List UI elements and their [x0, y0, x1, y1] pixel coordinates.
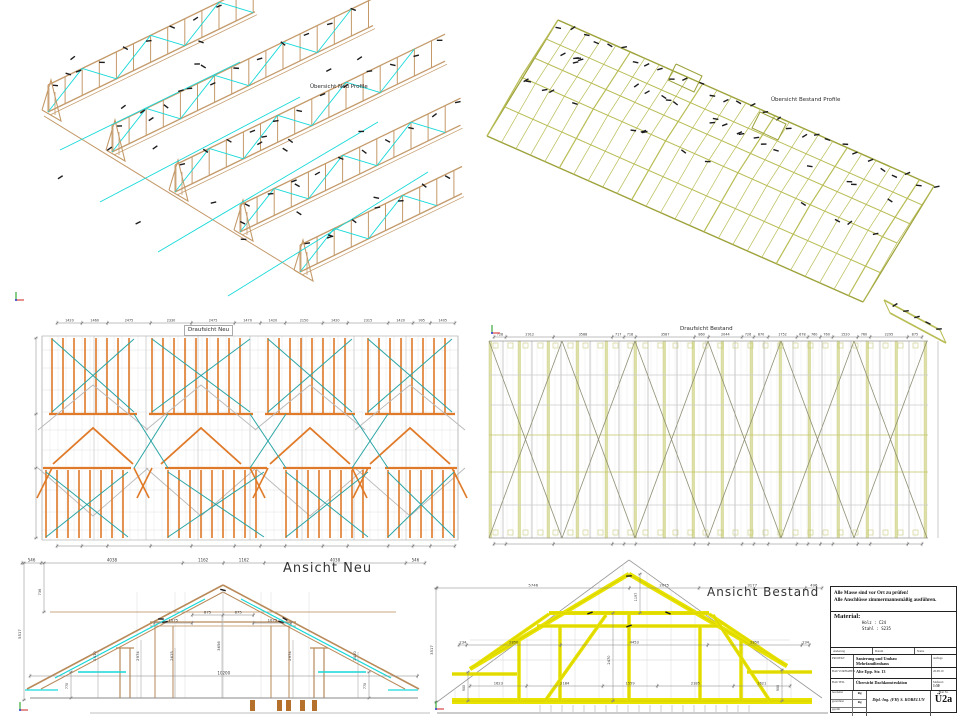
sign-label: bearbeitet	[831, 691, 853, 699]
sign-value: Rg	[853, 700, 866, 708]
material-section: Material: Holz : C24 Stahl : S235	[831, 611, 956, 647]
svg-text:234: 234	[459, 640, 467, 644]
svg-text:2410: 2410	[92, 651, 97, 661]
rev-col-name: Name	[915, 648, 956, 654]
svg-text:5517: 5517	[17, 629, 22, 639]
svg-text:770: 770	[65, 683, 69, 689]
blatt-value: Ü2a	[931, 694, 956, 706]
drawing-sheet: 1420146024752330247514701420215014202315…	[0, 0, 960, 720]
iso-neu-title: Übersicht Neu Profile	[310, 84, 368, 90]
svg-text:1470: 1470	[243, 318, 252, 322]
bauteil-label: BAUTEIL	[831, 679, 854, 690]
svg-text:546: 546	[28, 557, 36, 562]
svg-text:678: 678	[799, 332, 805, 336]
svg-text:1197: 1197	[634, 593, 638, 602]
svg-text:1752: 1752	[778, 332, 787, 336]
svg-text:860: 860	[698, 332, 704, 336]
iso-neu-drawing	[15, 0, 464, 301]
svg-text:5746: 5746	[528, 582, 538, 587]
svg-text:2075: 2075	[659, 582, 669, 587]
svg-text:875: 875	[912, 332, 918, 336]
auflage-value: 26.08.19	[932, 668, 956, 678]
svg-text:760: 760	[823, 332, 829, 336]
svg-text:1559: 1559	[625, 681, 635, 685]
svg-text:2912: 2912	[525, 332, 534, 336]
svg-text:726: 726	[745, 332, 751, 336]
sign-row-geprueft: geprüft	[831, 708, 866, 716]
svg-text:2974: 2974	[135, 651, 140, 661]
projekt-label: PROJEKT	[831, 655, 854, 667]
note-joinery: Alle Anschlüsse zimmermannsmäßig ausführ…	[834, 597, 953, 604]
bauvorhaben-value: Alte Epp. Str. 13	[854, 668, 932, 678]
svg-text:875: 875	[204, 609, 212, 614]
svg-text:1420: 1420	[396, 318, 405, 322]
svg-text:1162: 1162	[198, 557, 209, 562]
bauvorhaben-label: BAUVORHABEN	[831, 668, 854, 678]
svg-text:900: 900	[462, 685, 466, 691]
svg-text:1162: 1162	[239, 557, 250, 562]
svg-text:760: 760	[811, 332, 817, 336]
svg-text:1623: 1623	[494, 681, 503, 685]
svg-text:2295: 2295	[885, 332, 894, 336]
svg-text:3588: 3588	[579, 332, 588, 336]
svg-text:2615: 2615	[169, 651, 174, 661]
svg-text:875: 875	[235, 609, 243, 614]
ansicht-bestand-title: Ansicht Bestand	[707, 585, 819, 599]
cad-canvas: 1420146024752330247514701420215014202315…	[0, 0, 960, 720]
sign-label: geprüft	[831, 708, 853, 716]
svg-text:1520: 1520	[841, 332, 850, 336]
svg-text:10200: 10200	[217, 670, 230, 675]
svg-text:900: 900	[776, 685, 780, 691]
bauteil-row: BAUTEIL Übersicht Dachkonstruktion Maßst…	[831, 678, 956, 690]
plan-neu-title: Draufsicht Neu	[184, 325, 233, 336]
signature-row: bearbeitet Rg gezeichnet Rg geprüft Dipl…	[831, 690, 956, 716]
svg-text:3587: 3587	[661, 332, 670, 336]
sign-value	[853, 708, 866, 716]
svg-text:2475: 2475	[209, 318, 218, 322]
svg-text:736: 736	[38, 589, 42, 596]
svg-text:1420: 1420	[65, 318, 74, 322]
svg-text:2850: 2850	[509, 640, 519, 644]
rev-col-aenderung: Änderung	[831, 648, 873, 654]
svg-text:2974: 2974	[287, 651, 292, 661]
svg-text:2044: 2044	[721, 332, 730, 336]
bauvorhaben-row: BAUVORHABEN Alte Epp. Str. 13 26.08.19	[831, 667, 956, 678]
sign-value: Rg	[853, 691, 866, 699]
iso-bestand-title: Übersicht Bestand Profile	[771, 97, 840, 103]
svg-text:2185: 2185	[691, 681, 700, 685]
svg-text:1621: 1621	[757, 681, 766, 685]
ansicht-neu-drawing: 5464038116211624038546107587587510751020…	[17, 557, 430, 713]
svg-text:1460: 1460	[90, 318, 99, 322]
projekt-value: Sanierung und Umbau Mehrfamilienhaus	[854, 655, 932, 667]
svg-text:1420: 1420	[331, 318, 340, 322]
ansicht-neu-title: Ansicht Neu	[283, 561, 372, 576]
svg-text:717: 717	[615, 332, 621, 336]
title-block-notes: Alle Masse sind vor Ort zu prüfen! Alle …	[831, 587, 956, 611]
firm-cell: Dipl.-Ing. (FH) S. KOBELUN	[867, 691, 931, 716]
svg-text:2850: 2850	[750, 640, 760, 644]
svg-text:995: 995	[418, 318, 424, 322]
svg-text:2475: 2475	[125, 318, 134, 322]
auflage-label: Auflage	[932, 655, 956, 667]
signature-table: bearbeitet Rg gezeichnet Rg geprüft	[831, 691, 867, 716]
svg-text:4453: 4453	[630, 640, 639, 644]
title-block: Alle Masse sind vor Ort zu prüfen! Alle …	[830, 586, 957, 713]
sign-row-gezeichnet: gezeichnet Rg	[831, 700, 866, 709]
plan-bestand-drawing: 7282912358871771835878602044726870175267…	[489, 325, 938, 546]
revision-strip: Änderung Datum Name	[831, 647, 956, 654]
massstab-cell: Maßstab 1:50	[932, 679, 956, 690]
plan-bestand-title: Draufsicht Bestand	[680, 326, 733, 332]
svg-text:3656: 3656	[216, 641, 221, 651]
svg-text:234: 234	[802, 640, 810, 644]
svg-text:1405: 1405	[438, 318, 447, 322]
svg-text:546: 546	[412, 557, 420, 562]
svg-text:2184: 2184	[560, 681, 570, 685]
svg-text:2330: 2330	[167, 318, 176, 322]
material-label: Material:	[834, 613, 953, 620]
svg-text:1420: 1420	[269, 318, 278, 322]
material-steel: Stahl : S235	[862, 626, 953, 632]
sheet-number-cell: Blatt Nr. Ü2a	[931, 691, 956, 716]
svg-text:870: 870	[758, 332, 764, 336]
svg-text:1075: 1075	[268, 617, 278, 622]
note-check-dimensions: Alle Masse sind vor Ort zu prüfen!	[834, 590, 953, 597]
svg-text:2315: 2315	[364, 318, 373, 322]
svg-text:1075: 1075	[169, 617, 179, 622]
svg-text:770: 770	[363, 683, 367, 689]
svg-text:718: 718	[627, 332, 633, 336]
sign-label: gezeichnet	[831, 700, 853, 708]
svg-text:4038: 4038	[107, 557, 118, 562]
firm-name: Dipl.-Ing. (FH) S. KOBELUN	[867, 697, 930, 702]
massstab-value: 1:50	[933, 684, 955, 688]
svg-text:760: 760	[861, 332, 867, 336]
projekt-row: PROJEKT Sanierung und Umbau Mehrfamilien…	[831, 654, 956, 667]
iso-bestand-drawing	[487, 20, 946, 343]
rev-col-datum: Datum	[873, 648, 915, 654]
plan-neu-drawing: 1420146024752330247514701420215014202315…	[34, 318, 467, 548]
svg-text:2470: 2470	[607, 655, 611, 665]
ansicht-bestand-drawing: 5746207531774962342850445328502341623218…	[429, 560, 828, 713]
svg-text:2150: 2150	[300, 318, 309, 322]
bauteil-value: Übersicht Dachkonstruktion	[854, 679, 932, 690]
sign-row-bearbeitet: bearbeitet Rg	[831, 691, 866, 700]
svg-text:2410: 2410	[352, 651, 357, 661]
svg-text:3517: 3517	[429, 645, 434, 655]
